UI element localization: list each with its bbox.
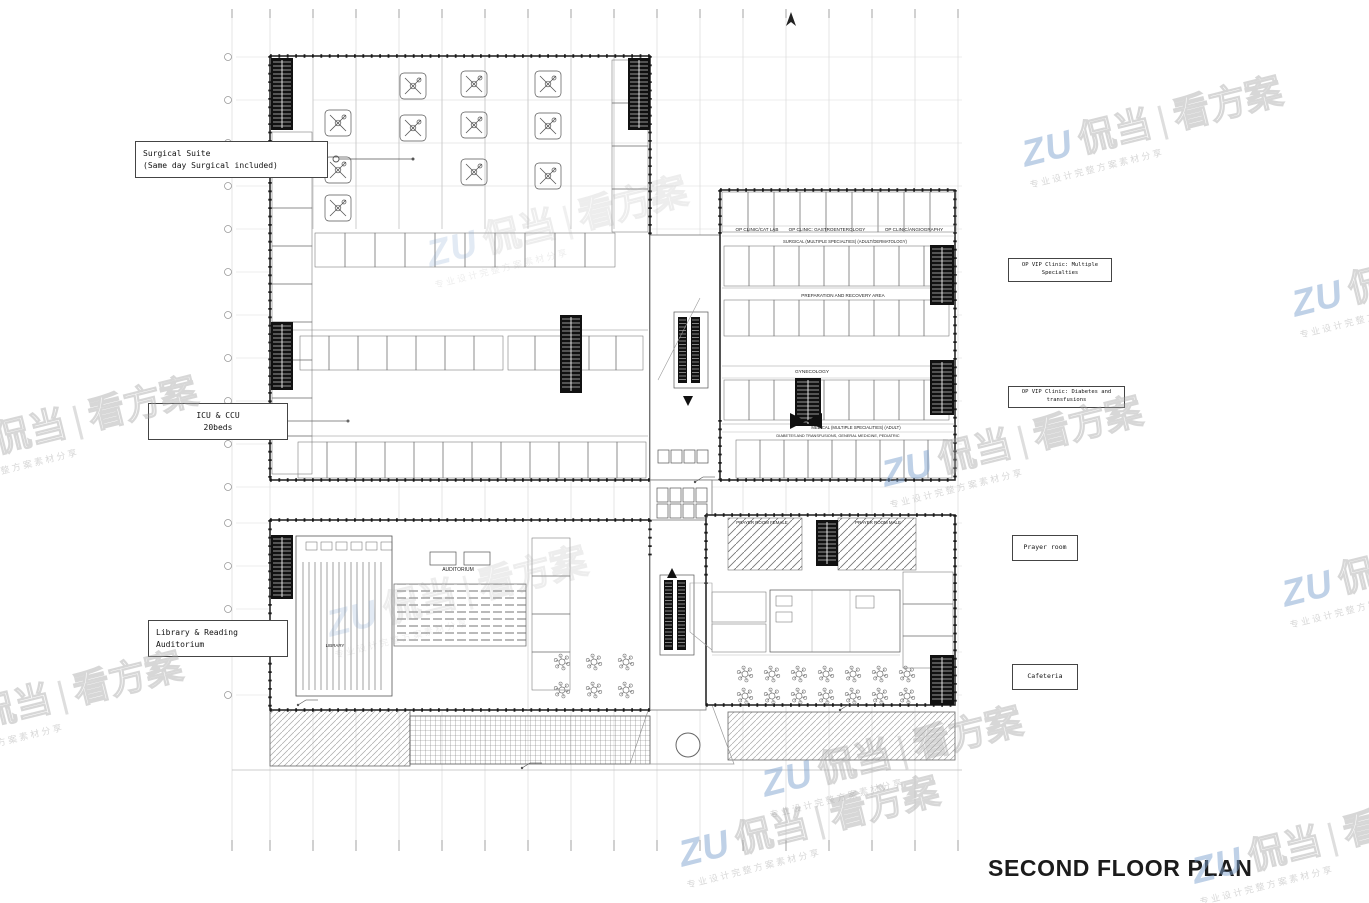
circle (225, 692, 232, 699)
callout-icu-ccu: ICU & CCU 20beds (148, 403, 288, 440)
callout-library-auditorium: Library & Reading Auditorium (148, 620, 288, 657)
room-label: MEDICAL (MULTIPLE SPECIALITIES) (ADULT) (811, 425, 901, 430)
circle (225, 226, 232, 233)
rect (677, 580, 686, 650)
circle (225, 269, 232, 276)
circle (225, 183, 232, 190)
circle (225, 441, 232, 448)
circle (676, 733, 700, 757)
circle (225, 355, 232, 362)
room-label: AUDITORIUM (442, 567, 474, 573)
rect (394, 584, 526, 646)
room-label: SURGICAL (MULTIPLE SPECIALTIES) (ADULT/D… (783, 239, 908, 244)
room-label: DIABETES AND TRANSFUSIONS, GENERAL MEDIC… (776, 433, 899, 438)
circle (521, 767, 523, 769)
room-label: GYNECOLOGY (795, 369, 830, 375)
rect (410, 716, 650, 764)
callout-vip-multiple: OP VIP Clinic: Multiple Specialties (1008, 258, 1112, 282)
rect (664, 580, 673, 650)
room-label: PRAYER ROOM FEMALE (736, 520, 787, 525)
callout-prayer-room: Prayer room (1012, 535, 1078, 561)
rect (728, 518, 802, 570)
sheet-title: SECOND FLOOR PLAN (988, 855, 1252, 882)
callout-surgical-suite: Surgical Suite (Same day Surgical includ… (135, 141, 328, 178)
room-label: PRAYER ROOM MALE (855, 520, 901, 525)
rect (838, 518, 916, 570)
circle (347, 420, 350, 423)
rect (728, 712, 955, 760)
room-label: OP CLINIC: GASTROENTEROLOGY (789, 227, 866, 232)
floor-plan-sheet: OP CLINIC/CAT LAB OP CLINIC: GASTROENTER… (0, 0, 1369, 903)
room-label: OP CLINIC/ANGIOGRAPHY (885, 227, 943, 232)
room-label: LIBRARY (326, 643, 345, 648)
circle (297, 704, 299, 706)
room-label: OP CLINIC/CAT LAB (736, 227, 779, 232)
circle (225, 97, 232, 104)
rect (302, 562, 386, 690)
surgical-icu-block (270, 56, 650, 480)
room-label: PREPARATION AND RECOVERY AREA (801, 293, 885, 298)
circle (225, 563, 232, 570)
circle (412, 158, 415, 161)
circle (694, 481, 696, 483)
polygon (786, 12, 796, 26)
floor-plan-drawing: OP CLINIC/CAT LAB OP CLINIC: GASTROENTER… (0, 0, 1369, 903)
callout-cafeteria: Cafeteria (1012, 664, 1078, 690)
callout-vip-diabetes: OP VIP Clinic: Diabetes and transfusions (1008, 386, 1125, 408)
circle (225, 484, 232, 491)
circle (225, 54, 232, 61)
circle (225, 606, 232, 613)
circle (225, 520, 232, 527)
circle (839, 709, 841, 711)
circle (225, 312, 232, 319)
